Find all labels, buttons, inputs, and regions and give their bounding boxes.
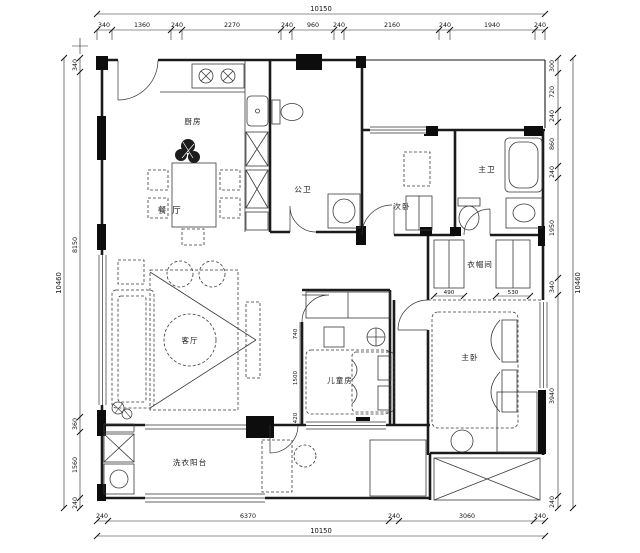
master-bath-door [464, 209, 490, 235]
master-bedroom-door [398, 300, 428, 330]
label-kids-room: 儿童房 [327, 375, 353, 385]
label-laundry-balcony: 洗衣阳台 [173, 457, 207, 467]
label-guest-bath: 公卫 [294, 185, 311, 194]
dim-kids-0: 740 [293, 328, 299, 339]
windows [98, 126, 548, 504]
dim-top-8: 240 [439, 22, 451, 29]
dim-bottom-total: 10150 [310, 527, 332, 535]
dim-top-7: 2160 [384, 22, 400, 29]
outdoor-units [370, 392, 540, 500]
dim-top-4: 240 [281, 22, 293, 29]
dim-left-2: 360 [72, 418, 79, 430]
dim-bottom-3: 3060 [459, 513, 475, 520]
dim-closet-left: 490 [444, 290, 455, 296]
dim-left-0: 340 [72, 59, 79, 71]
dim-top-5: 960 [307, 22, 319, 29]
dim-bottom-1: 6370 [240, 513, 256, 520]
dim-top-9: 1940 [484, 22, 500, 29]
label-living: 客厅 [181, 335, 198, 345]
label-kitchen: 厨房 [184, 116, 201, 126]
guest-bath-door [290, 206, 316, 232]
dim-top-total: 10150 [310, 5, 332, 13]
balcony-door [270, 425, 298, 453]
dim-right-0: 300 [549, 60, 556, 72]
dim-kids-2: 420 [293, 412, 299, 423]
dim-right-5: 1950 [549, 220, 556, 236]
exterior-walls [100, 58, 545, 500]
dim-closet-right: 530 [508, 290, 519, 296]
second-bedroom-door [362, 205, 394, 235]
master-bedroom-furniture [432, 312, 518, 452]
kids-room-furniture: 740 1500 420 [293, 292, 394, 425]
dim-bottom-0: 240 [96, 513, 108, 520]
dimension-left: 340 8150 360 1560 240 10460 [55, 38, 88, 511]
guest-bath-fixtures [272, 100, 360, 228]
dimension-right: 300 720 240 860 240 1950 340 3940 240 10… [549, 55, 582, 511]
label-closet: 衣帽间 [467, 259, 493, 269]
closet-wardrobes: 490 530 [431, 240, 533, 299]
label-dining: 餐 厅 [158, 205, 182, 216]
label-second-bedroom: 次卧 [393, 201, 410, 211]
dim-top-3: 2270 [224, 22, 240, 29]
dim-right-8: 240 [549, 496, 556, 508]
dim-right-1: 720 [549, 86, 556, 98]
dim-right-2: 240 [549, 110, 556, 122]
dim-right-7: 3940 [549, 388, 556, 404]
dim-top-2: 240 [171, 22, 183, 29]
dimension-bottom: 240 6370 240 3060 240 10150 [94, 513, 548, 539]
dim-top-0: 340 [98, 22, 110, 29]
dim-left-4: 240 [72, 497, 79, 509]
dim-left-1: 8150 [72, 237, 79, 253]
dim-bottom-4: 240 [534, 513, 546, 520]
dim-right-6: 340 [549, 281, 556, 293]
dim-top-10: 240 [534, 22, 546, 29]
dim-right-total: 10460 [574, 272, 582, 294]
entry-door [118, 60, 158, 100]
living-plant [112, 402, 132, 419]
floor-plan-drawing: 10150 340 1360 240 2270 240 960 240 2160… [0, 0, 640, 553]
label-master-bath: 主卫 [478, 164, 495, 174]
dim-top-1: 1360 [134, 22, 150, 29]
dim-left-3: 1560 [72, 457, 79, 473]
dining-set [148, 139, 240, 245]
laundry-balcony-fixtures [104, 424, 316, 494]
dim-kids-1: 1500 [293, 370, 299, 385]
dim-right-4: 240 [549, 166, 556, 178]
table-plant [175, 139, 200, 163]
corner-cross-mark [72, 38, 88, 54]
interior-walls [100, 60, 543, 455]
dim-bottom-2: 240 [388, 513, 400, 520]
structural-columns [96, 54, 546, 501]
dim-left-total: 10460 [55, 272, 63, 294]
dim-top-6: 240 [333, 22, 345, 29]
dimension-top: 10150 340 1360 240 2270 240 960 240 2160… [94, 5, 548, 40]
floor-plan-canvas: 10150 340 1360 240 2270 240 960 240 2160… [0, 0, 640, 553]
second-bedroom-fixtures [404, 152, 432, 230]
dim-right-3: 860 [549, 138, 556, 150]
master-bath-fixtures [458, 138, 542, 230]
label-master-bedroom: 主卧 [461, 352, 478, 362]
